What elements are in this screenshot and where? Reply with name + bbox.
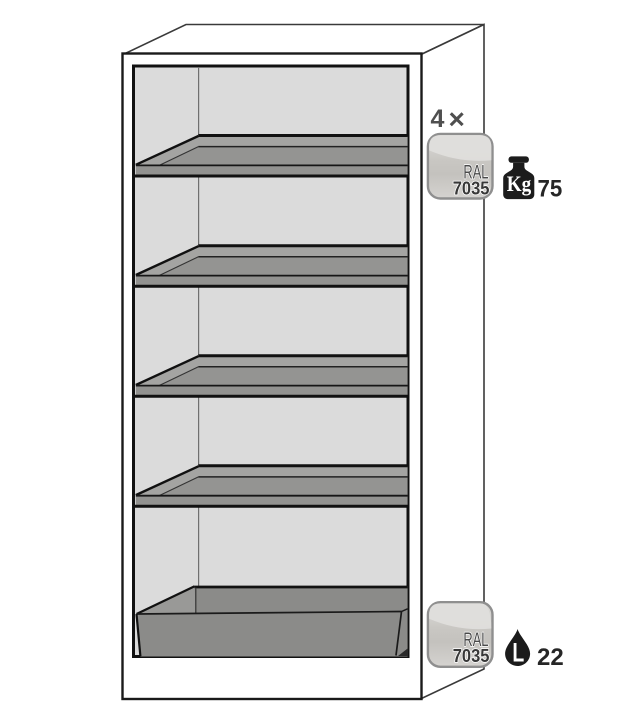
- svg-text:7035: 7035: [453, 645, 490, 666]
- svg-text:4: 4: [431, 105, 445, 133]
- svg-text:Kg: Kg: [507, 171, 532, 197]
- svg-text:75: 75: [538, 175, 563, 202]
- svg-text:22: 22: [537, 644, 564, 671]
- svg-text:×: ×: [449, 103, 465, 134]
- svg-text:7035: 7035: [453, 177, 490, 198]
- svg-text:L: L: [512, 637, 524, 667]
